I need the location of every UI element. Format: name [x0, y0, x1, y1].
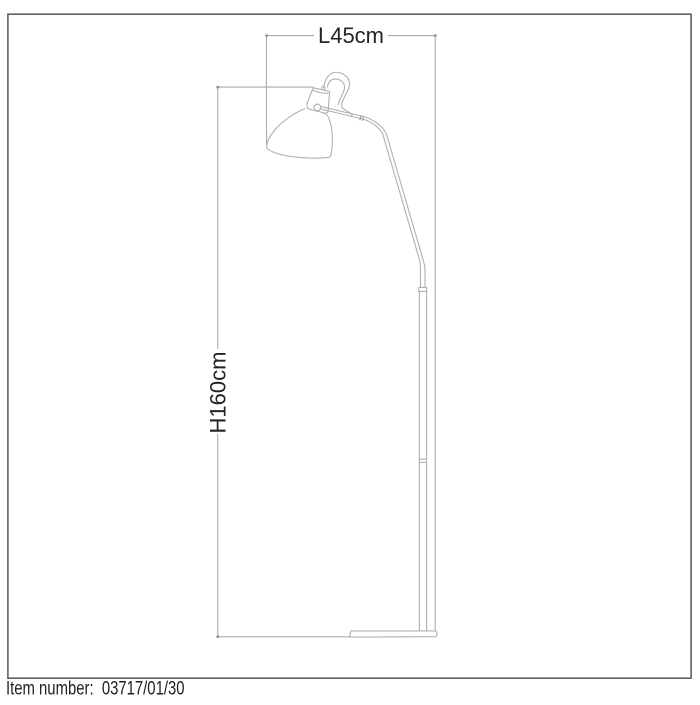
svg-text:Item number: 03717/01/30: Item number: 03717/01/30	[6, 679, 185, 700]
svg-text:H160cm: H160cm	[205, 352, 230, 434]
svg-text:L45cm: L45cm	[318, 23, 384, 48]
